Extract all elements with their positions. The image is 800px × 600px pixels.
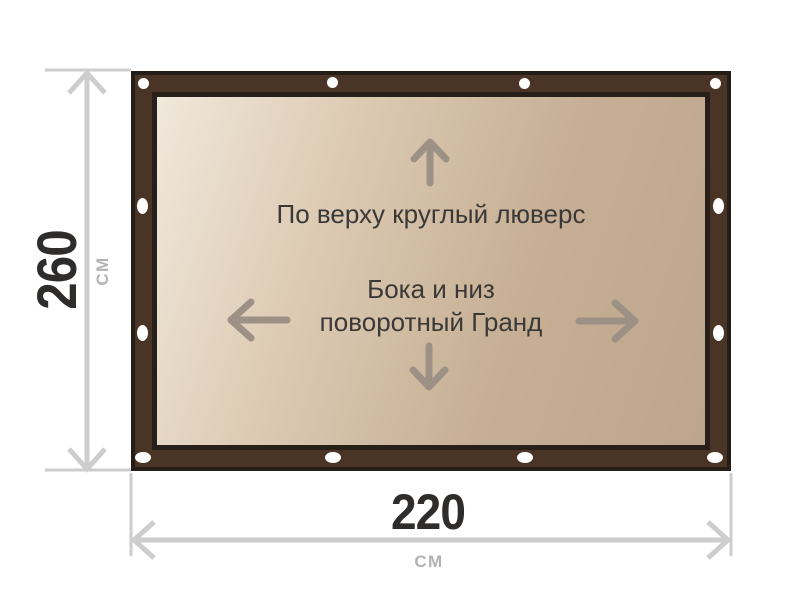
height-dimension-value: 260 (27, 200, 87, 341)
grommet-round-icon (327, 77, 338, 88)
banner-frame: По верху круглый люверс Бока и низ повор… (131, 71, 731, 471)
width-dimension-unit: СМ (379, 552, 479, 572)
arrow-left-icon (227, 297, 291, 343)
grommet-oval-horizontal-icon (707, 452, 723, 463)
grommet-oval-horizontal-icon (135, 452, 151, 463)
width-dimension-value: 220 (336, 486, 520, 538)
banner-panel: По верху круглый люверс Бока и низ повор… (152, 92, 710, 450)
grommet-oval-vertical-icon (713, 198, 724, 214)
grommet-oval-horizontal-icon (325, 452, 341, 463)
grommet-oval-vertical-icon (713, 325, 724, 341)
grommet-oval-vertical-icon (137, 198, 148, 214)
top-fastening-note: По верху круглый люверс (157, 198, 705, 231)
grommet-oval-vertical-icon (137, 325, 148, 341)
arrow-up-icon (407, 137, 453, 187)
arrow-right-icon (575, 298, 639, 344)
arrow-down-icon (406, 342, 452, 392)
grommet-round-icon (519, 78, 530, 89)
product-size-diagram: { "diagram": { "banner": { "top_note": "… (0, 0, 800, 600)
grommet-round-icon (138, 78, 149, 89)
grommet-oval-horizontal-icon (517, 452, 533, 463)
grommet-round-icon (710, 78, 721, 89)
height-dimension-unit: СМ (93, 241, 113, 301)
